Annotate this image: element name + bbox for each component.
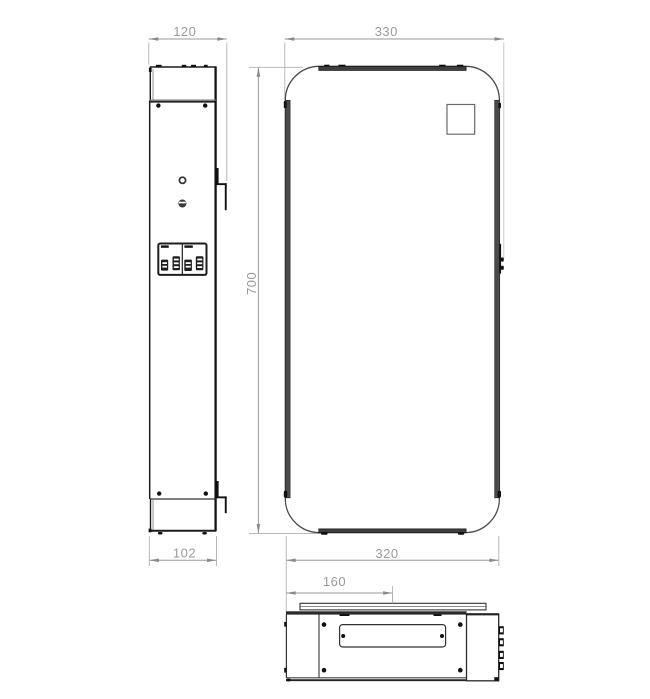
- svg-text:700: 700: [244, 272, 259, 295]
- svg-text:320: 320: [375, 546, 398, 561]
- svg-text:160: 160: [323, 574, 346, 589]
- svg-text:330: 330: [375, 24, 398, 39]
- svg-text:102: 102: [173, 545, 196, 560]
- svg-text:120: 120: [173, 24, 196, 39]
